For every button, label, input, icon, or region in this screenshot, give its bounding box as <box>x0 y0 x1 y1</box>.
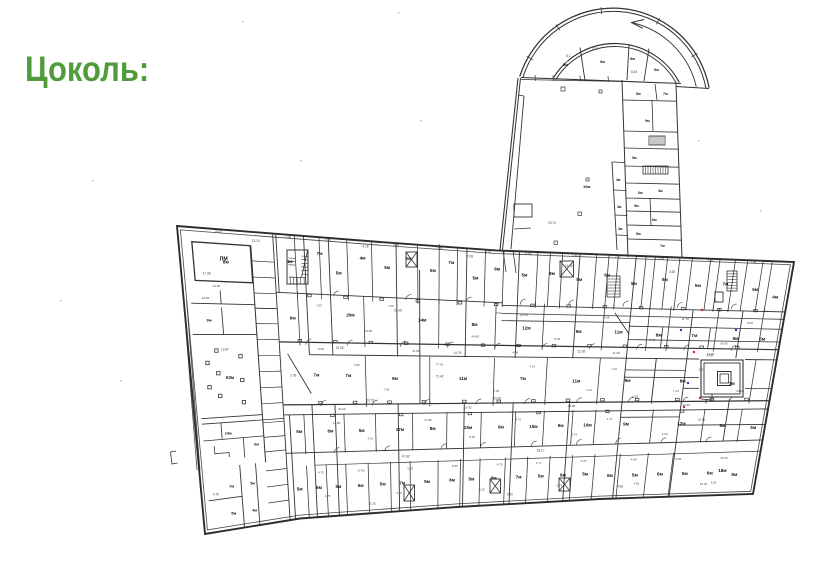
svg-text:11.48: 11.48 <box>565 264 573 268</box>
svg-text:4м: 4м <box>616 178 621 182</box>
svg-text:3.75: 3.75 <box>557 484 563 488</box>
svg-text:5м: 5м <box>424 479 431 484</box>
svg-text:16м: 16м <box>583 423 592 428</box>
svg-text:7.80: 7.80 <box>354 363 360 367</box>
svg-text:47.82: 47.82 <box>402 455 410 459</box>
svg-text:5м: 5м <box>250 482 255 486</box>
svg-text:15м: 15м <box>464 425 473 430</box>
svg-text:6м: 6м <box>290 316 297 321</box>
svg-text:7.00: 7.00 <box>436 246 442 250</box>
svg-text:7м: 7м <box>448 260 455 265</box>
svg-text:23.00: 23.00 <box>707 352 715 356</box>
svg-text:5м: 5м <box>631 281 638 286</box>
svg-text:5м: 5м <box>630 57 635 61</box>
svg-text:8м: 8м <box>731 472 738 477</box>
svg-text:4.70: 4.70 <box>213 493 219 497</box>
svg-text:22.06: 22.06 <box>336 346 344 350</box>
svg-text:3м: 3м <box>617 205 622 209</box>
svg-text:9м: 9м <box>405 256 412 261</box>
svg-text:2.30: 2.30 <box>485 250 491 254</box>
svg-text:7.18: 7.18 <box>493 389 499 393</box>
svg-text:19м: 19м <box>583 184 590 189</box>
svg-text:5.20: 5.20 <box>507 492 513 496</box>
svg-text:5м: 5м <box>469 477 476 482</box>
svg-text:6м: 6м <box>254 443 259 447</box>
svg-text:7м: 7м <box>313 373 320 378</box>
svg-text:5м: 5м <box>632 156 637 160</box>
svg-text:4.75: 4.75 <box>515 418 521 422</box>
svg-text:6м: 6м <box>328 429 335 434</box>
svg-text:11м: 11м <box>572 378 581 383</box>
svg-text:5.93: 5.93 <box>526 252 532 256</box>
svg-text:7м: 7м <box>345 373 352 378</box>
svg-text:4.12: 4.12 <box>586 388 592 392</box>
svg-text:8м: 8м <box>472 322 479 327</box>
svg-text:5м: 5м <box>473 276 480 281</box>
svg-text:17.88: 17.88 <box>424 418 432 422</box>
svg-text:6м: 6м <box>560 473 567 478</box>
svg-text:4.98: 4.98 <box>512 351 518 355</box>
svg-text:6м: 6м <box>491 476 498 481</box>
svg-text:7м: 7м <box>663 92 668 96</box>
svg-text:5м: 5м <box>384 265 391 270</box>
svg-text:4м: 4м <box>287 259 294 264</box>
svg-text:4.60: 4.60 <box>634 482 640 486</box>
svg-text:9м: 9м <box>392 376 399 381</box>
svg-text:8м: 8м <box>498 425 505 430</box>
svg-text:6.55: 6.55 <box>711 481 717 485</box>
svg-text:2.87: 2.87 <box>699 368 705 372</box>
svg-text:8м: 8м <box>656 332 663 337</box>
svg-text:8м: 8м <box>680 378 687 383</box>
svg-text:9м: 9м <box>623 422 630 427</box>
svg-text:9м: 9м <box>576 329 583 334</box>
svg-text:2.11: 2.11 <box>615 255 621 259</box>
svg-text:8м: 8м <box>662 277 669 282</box>
svg-text:5м: 5м <box>297 486 304 491</box>
svg-text:7м: 7м <box>229 483 234 488</box>
svg-text:4.56: 4.56 <box>604 316 610 320</box>
svg-text:71.42: 71.42 <box>436 374 444 378</box>
svg-text:5м: 5м <box>336 270 343 275</box>
svg-text:5м: 5м <box>231 511 236 516</box>
svg-text:4.60: 4.60 <box>631 458 637 462</box>
svg-text:17.08: 17.08 <box>203 272 211 276</box>
svg-text:6м: 6м <box>494 267 501 272</box>
svg-text:5м: 5м <box>750 425 757 430</box>
svg-text:20м: 20м <box>346 312 355 317</box>
svg-text:5.75: 5.75 <box>407 466 413 470</box>
svg-text:13.87: 13.87 <box>221 347 229 351</box>
svg-text:10.84: 10.84 <box>202 296 210 300</box>
svg-text:2.00: 2.00 <box>285 235 291 239</box>
svg-text:8.40: 8.40 <box>631 70 637 74</box>
svg-text:5.75: 5.75 <box>581 459 587 463</box>
svg-text:3.88: 3.88 <box>393 243 399 247</box>
svg-text:9м: 9м <box>207 318 212 323</box>
svg-text:5м: 5м <box>682 471 689 476</box>
svg-text:5м: 5м <box>538 474 545 479</box>
svg-text:4м: 4м <box>360 256 367 261</box>
svg-text:15м: 15м <box>529 424 538 429</box>
svg-text:9м: 9м <box>645 119 650 123</box>
svg-text:9м: 9м <box>625 378 632 383</box>
svg-text:6м: 6м <box>316 485 323 490</box>
svg-text:7м: 7м <box>520 376 527 381</box>
svg-text:5м: 5м <box>359 428 366 433</box>
svg-text:8м: 8м <box>549 271 556 276</box>
svg-text:7.14: 7.14 <box>529 365 535 369</box>
svg-text:7м: 7м <box>691 333 698 338</box>
svg-text:8.98: 8.98 <box>318 347 324 351</box>
svg-text:7м: 7м <box>317 251 324 256</box>
svg-text:9м: 9м <box>558 423 565 428</box>
svg-text:12м: 12м <box>677 421 686 426</box>
svg-text:5м: 5м <box>759 337 766 342</box>
svg-text:5.93: 5.93 <box>496 311 502 315</box>
svg-text:15.46: 15.46 <box>700 482 708 486</box>
svg-text:5м: 5м <box>522 273 529 278</box>
svg-text:11.78: 11.78 <box>682 317 690 321</box>
svg-text:6м: 6м <box>638 191 643 195</box>
svg-text:14.06: 14.06 <box>213 284 221 288</box>
svg-text:3.75: 3.75 <box>369 502 375 506</box>
svg-text:4м: 4м <box>252 508 257 512</box>
svg-text:5м: 5м <box>576 277 583 282</box>
svg-text:9м: 9м <box>654 68 659 72</box>
svg-text:8.00: 8.00 <box>747 321 753 325</box>
svg-text:4.75: 4.75 <box>318 471 324 475</box>
svg-text:23.08: 23.08 <box>568 404 576 408</box>
svg-text:7.48: 7.48 <box>750 260 756 264</box>
svg-text:5м: 5м <box>430 268 437 273</box>
svg-text:5м: 5м <box>632 472 639 477</box>
svg-text:6м: 6м <box>604 273 611 278</box>
svg-text:7.02: 7.02 <box>707 259 713 263</box>
svg-text:5м: 5м <box>380 482 387 487</box>
svg-text:2.70: 2.70 <box>592 47 598 51</box>
svg-text:7.14: 7.14 <box>673 389 679 393</box>
svg-text:6м: 6м <box>752 287 759 292</box>
svg-text:14м: 14м <box>225 432 232 436</box>
svg-text:6м: 6м <box>652 218 657 222</box>
svg-text:5м: 5м <box>582 472 589 477</box>
svg-text:7.00: 7.00 <box>388 304 394 308</box>
svg-text:7.03: 7.03 <box>316 304 322 308</box>
svg-text:19.72: 19.72 <box>548 221 556 225</box>
svg-text:3.60: 3.60 <box>669 270 675 274</box>
svg-text:5м: 5м <box>563 63 568 67</box>
svg-text:11.08: 11.08 <box>613 351 621 355</box>
svg-text:4м: 4м <box>772 295 779 300</box>
svg-text:10.90: 10.90 <box>365 329 373 333</box>
svg-text:8м: 8м <box>223 260 230 265</box>
svg-text:11.08: 11.08 <box>577 350 585 354</box>
svg-text:7м: 7м <box>723 281 730 286</box>
svg-text:5м: 5м <box>296 429 303 434</box>
svg-text:4.10: 4.10 <box>368 437 374 441</box>
svg-text:8м: 8м <box>720 423 727 428</box>
svg-text:3.20: 3.20 <box>397 491 403 495</box>
svg-text:18м: 18м <box>718 468 727 473</box>
svg-text:6м: 6м <box>657 472 664 477</box>
svg-text:17.82: 17.82 <box>464 406 472 410</box>
svg-text:8.02: 8.02 <box>554 337 560 341</box>
svg-text:5м: 5м <box>636 232 641 236</box>
svg-text:6м: 6м <box>358 483 365 488</box>
svg-text:7.08: 7.08 <box>467 254 473 258</box>
svg-text:11.86: 11.86 <box>412 349 420 353</box>
svg-text:3м: 3м <box>618 227 623 231</box>
svg-text:7.40: 7.40 <box>572 253 578 257</box>
svg-text:4м: 4м <box>658 189 663 193</box>
svg-text:6м: 6м <box>607 473 614 478</box>
svg-text:15.46: 15.46 <box>720 456 728 460</box>
svg-text:14.65: 14.65 <box>720 342 728 346</box>
svg-text:8м: 8м <box>430 426 437 431</box>
svg-text:5.75: 5.75 <box>571 432 577 436</box>
svg-text:6м: 6м <box>707 470 714 475</box>
svg-text:18.17: 18.17 <box>537 448 545 452</box>
svg-text:7м: 7м <box>729 381 736 386</box>
svg-text:22.06: 22.06 <box>394 308 402 312</box>
svg-text:44.96: 44.96 <box>471 335 479 339</box>
svg-text:4.43: 4.43 <box>649 338 655 342</box>
svg-text:47.80: 47.80 <box>333 421 341 425</box>
svg-text:5м: 5м <box>634 204 639 208</box>
svg-text:14.13: 14.13 <box>214 230 222 234</box>
svg-text:4.60: 4.60 <box>662 432 668 436</box>
svg-text:17м: 17м <box>396 427 405 432</box>
svg-text:17.60: 17.60 <box>357 469 365 473</box>
svg-text:20.85: 20.85 <box>698 417 706 421</box>
svg-text:14.76: 14.76 <box>453 351 461 355</box>
svg-text:77.42: 77.42 <box>436 363 444 367</box>
svg-text:1.77: 1.77 <box>536 461 542 465</box>
svg-text:1.77: 1.77 <box>607 417 613 421</box>
svg-text:7.40: 7.40 <box>384 388 390 392</box>
svg-text:4.75: 4.75 <box>497 463 503 467</box>
svg-text:5м: 5м <box>336 484 343 489</box>
svg-text:4.75: 4.75 <box>325 494 331 498</box>
svg-text:8.25: 8.25 <box>452 464 458 468</box>
svg-text:4.60: 4.60 <box>617 485 623 489</box>
svg-text:3.00: 3.00 <box>658 257 664 261</box>
svg-text:12м: 12м <box>522 326 531 331</box>
svg-text:8.25: 8.25 <box>469 435 475 439</box>
svg-text:5.30: 5.30 <box>325 238 331 242</box>
svg-text:7м: 7м <box>516 475 523 480</box>
svg-text:63м: 63м <box>226 375 234 380</box>
svg-text:14м: 14м <box>418 318 427 323</box>
svg-text:23.08: 23.08 <box>736 389 744 393</box>
svg-text:2.06: 2.06 <box>290 374 296 378</box>
svg-text:7м: 7м <box>399 480 406 485</box>
svg-text:14.06: 14.06 <box>520 313 528 317</box>
svg-text:7.42: 7.42 <box>611 367 617 371</box>
svg-text:11м: 11м <box>614 329 623 334</box>
svg-text:5м: 5м <box>636 92 641 96</box>
svg-text:4.18: 4.18 <box>362 244 368 248</box>
svg-text:5м: 5м <box>695 283 702 288</box>
svg-text:6.55: 6.55 <box>676 457 682 461</box>
svg-text:9м: 9м <box>600 60 605 64</box>
svg-text:5.20: 5.20 <box>479 487 485 491</box>
svg-text:40.00: 40.00 <box>338 407 346 411</box>
svg-text:8.1: 8.1 <box>566 54 571 58</box>
svg-text:6м: 6м <box>449 478 456 483</box>
svg-text:13.14: 13.14 <box>252 239 260 243</box>
svg-text:11м: 11м <box>459 376 468 381</box>
svg-text:7м: 7м <box>660 244 665 248</box>
svg-text:9м: 9м <box>733 336 740 341</box>
